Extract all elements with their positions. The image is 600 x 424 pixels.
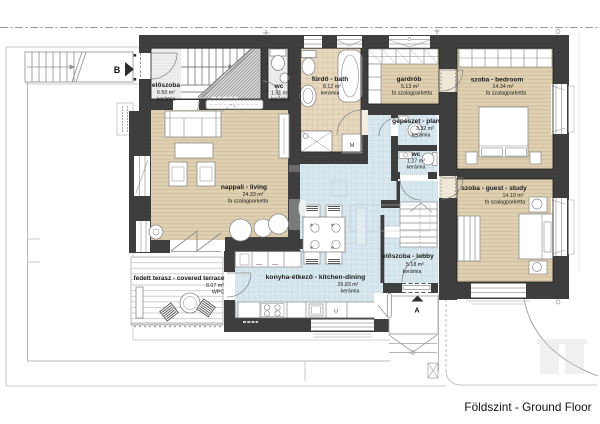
svg-text:fa szalagparketta: fa szalagparketta <box>485 200 525 206</box>
svg-text:kerámia: kerámia <box>412 133 431 139</box>
svg-text:fedett terasz - covered terrac: fedett terasz - covered terrace <box>134 275 225 282</box>
svg-text:6.50 m²: 6.50 m² <box>157 90 175 96</box>
svg-text:wc: wc <box>411 151 421 158</box>
svg-text:fa szalagparketta: fa szalagparketta <box>392 91 432 97</box>
svg-text:előszoba: előszoba <box>152 82 181 89</box>
svg-text:fa szalagparketta: fa szalagparketta <box>228 199 268 205</box>
svg-text:kerámia: kerámia <box>403 269 422 275</box>
svg-text:U: U <box>334 309 338 315</box>
svg-text:kerámia: kerámia <box>341 289 360 295</box>
svg-text:nappali - living: nappali - living <box>221 184 267 191</box>
svg-text:5.13 m²: 5.13 m² <box>401 84 419 90</box>
svg-text:8.12 m²: 8.12 m² <box>323 84 341 90</box>
svg-text:gardrób: gardrób <box>397 76 422 83</box>
svg-text:26.83 m²: 26.83 m² <box>338 282 359 288</box>
svg-text:gépészet - plan: gépészet - plan <box>392 118 440 125</box>
svg-text:kerámia: kerámia <box>271 97 290 103</box>
svg-text:5.18 m²: 5.18 m² <box>406 262 424 268</box>
svg-text:kerámia: kerámia <box>407 165 426 171</box>
svg-text:kerámia: kerámia <box>157 97 176 103</box>
svg-text:24.33 m²: 24.33 m² <box>243 192 264 198</box>
svg-text:előszoba - lobby: előszoba - lobby <box>382 253 434 260</box>
svg-text:A: A <box>414 308 419 315</box>
svg-text:wc: wc <box>274 83 284 90</box>
svg-text:M: M <box>350 143 355 149</box>
svg-text:14.10 m²: 14.10 m² <box>503 193 524 199</box>
svg-text:fürdő - bath: fürdő - bath <box>312 76 349 83</box>
svg-text:B: B <box>114 65 121 75</box>
svg-text:szoba - guest - study: szoba - guest - study <box>461 185 527 192</box>
svg-text:konyha-étkező - kitchen-dining: konyha-étkező - kitchen-dining <box>266 274 366 281</box>
svg-text:WPC: WPC <box>212 290 225 296</box>
svg-text:3.32 m²: 3.32 m² <box>416 126 434 132</box>
svg-text:14.34 m²: 14.34 m² <box>493 84 514 90</box>
svg-text:kerámia: kerámia <box>321 91 340 97</box>
svg-text:fa szalagparketta: fa szalagparketta <box>486 91 526 97</box>
svg-text:8.07 m²: 8.07 m² <box>206 283 224 289</box>
svg-text:szoba - bedroom: szoba - bedroom <box>471 77 524 84</box>
svg-text:Földszint - Ground Floor: Földszint - Ground Floor <box>464 400 591 414</box>
